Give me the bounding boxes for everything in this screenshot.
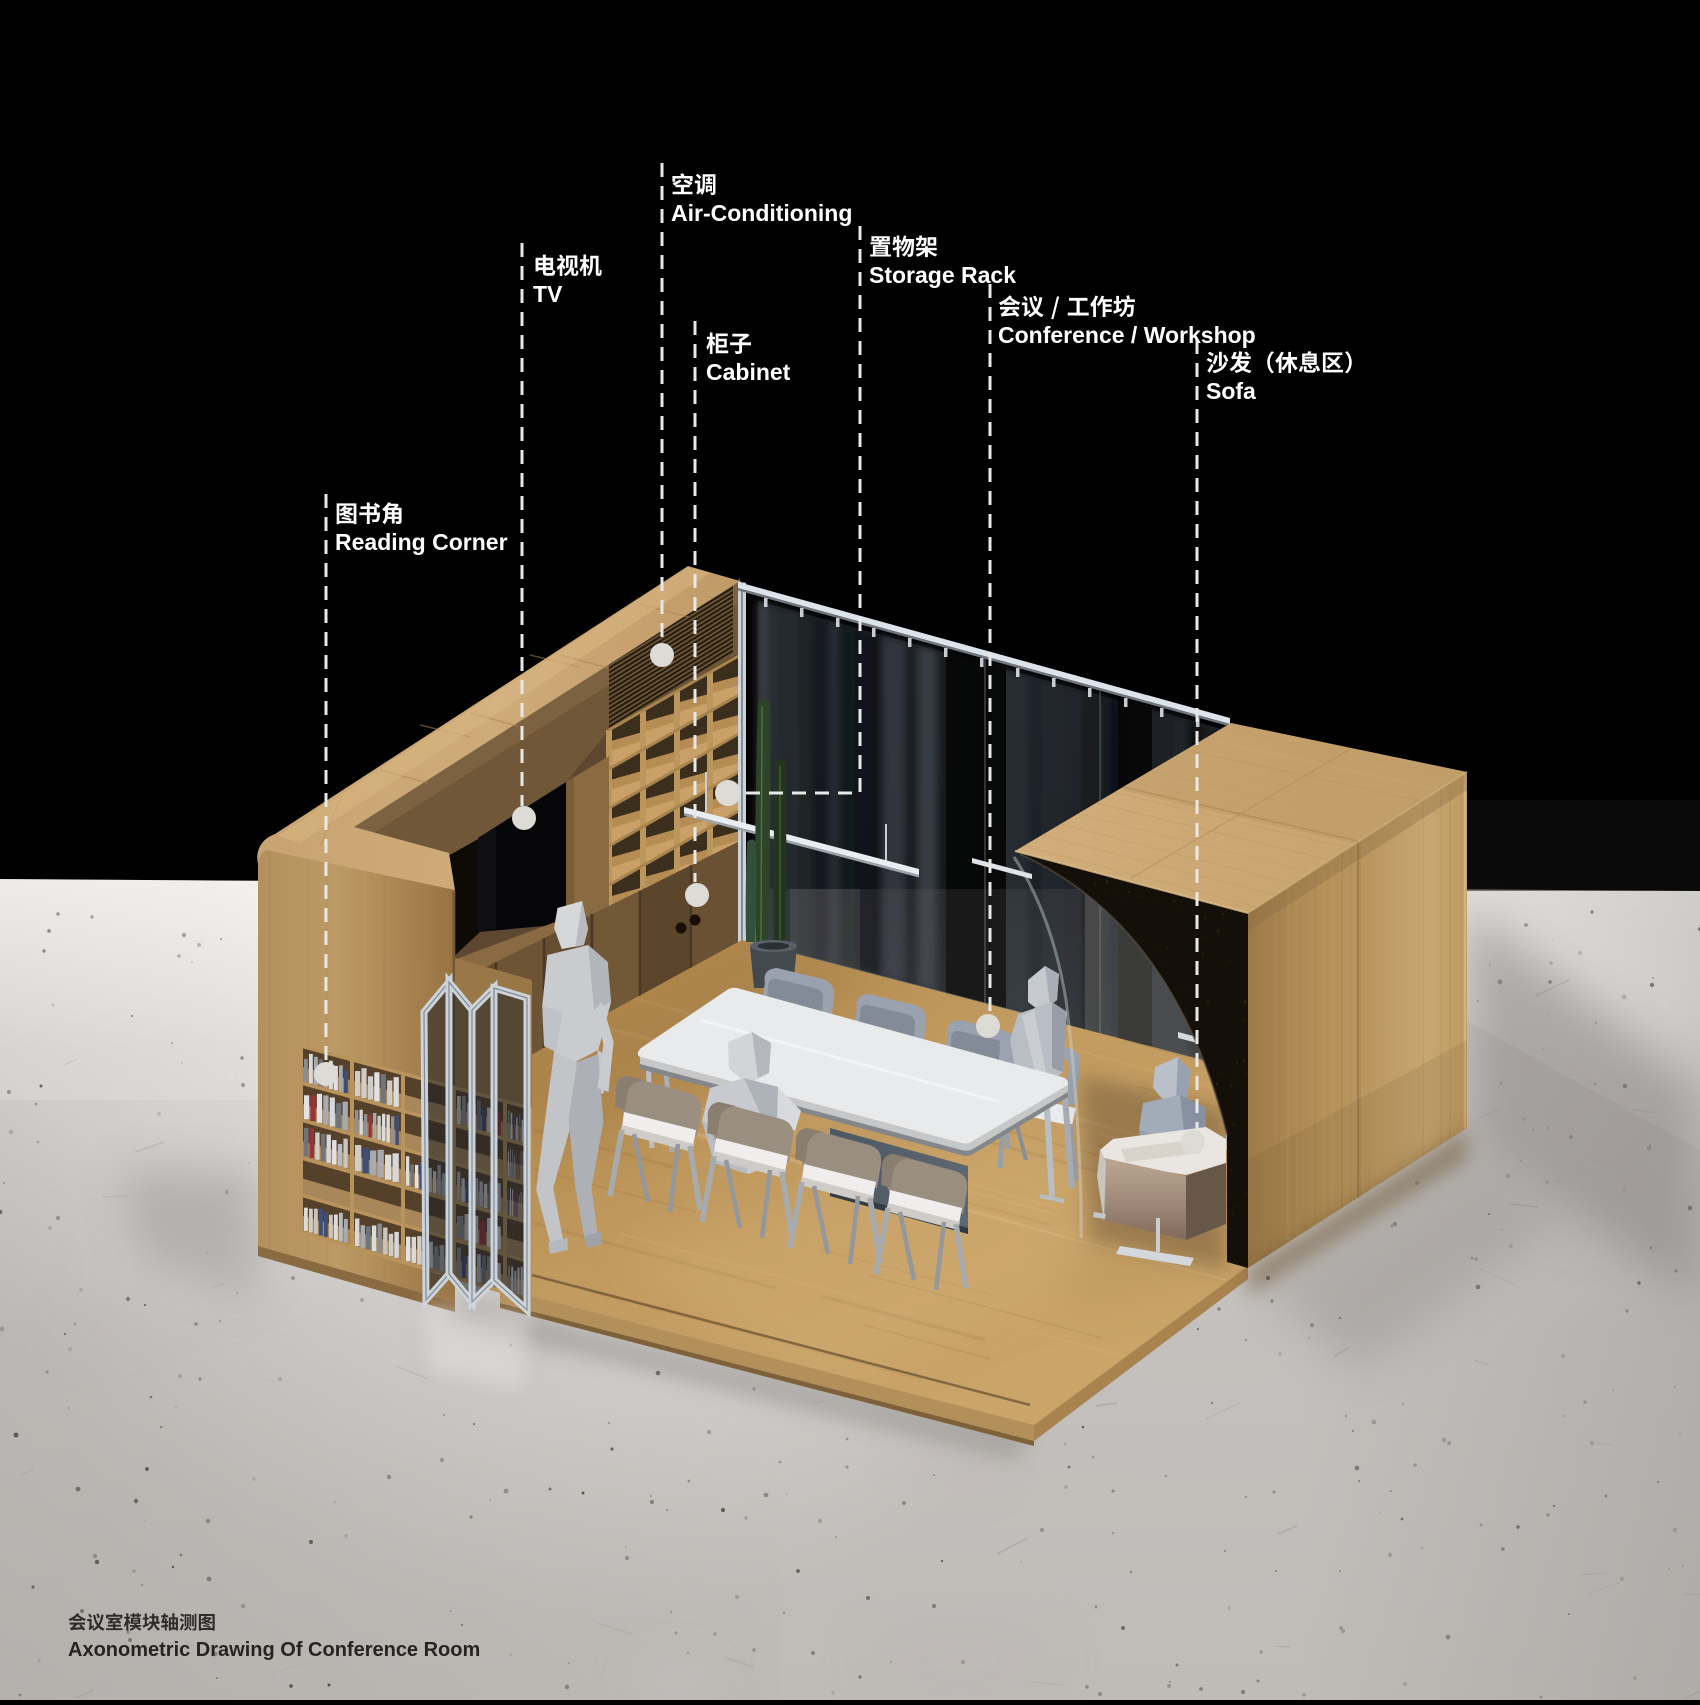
svg-text:Axonometric Drawing Of Confere: Axonometric Drawing Of Conference Room bbox=[68, 1639, 480, 1661]
svg-text:Reading Corner: Reading Corner bbox=[335, 529, 508, 555]
svg-text:Air-Conditioning: Air-Conditioning bbox=[671, 200, 852, 226]
svg-text:TV: TV bbox=[533, 281, 563, 307]
svg-text:Conference / Workshop: Conference / Workshop bbox=[998, 322, 1256, 348]
svg-text:Sofa: Sofa bbox=[1206, 378, 1256, 404]
svg-text:Storage Rack: Storage Rack bbox=[869, 262, 1016, 288]
svg-text:Cabinet: Cabinet bbox=[706, 359, 791, 385]
